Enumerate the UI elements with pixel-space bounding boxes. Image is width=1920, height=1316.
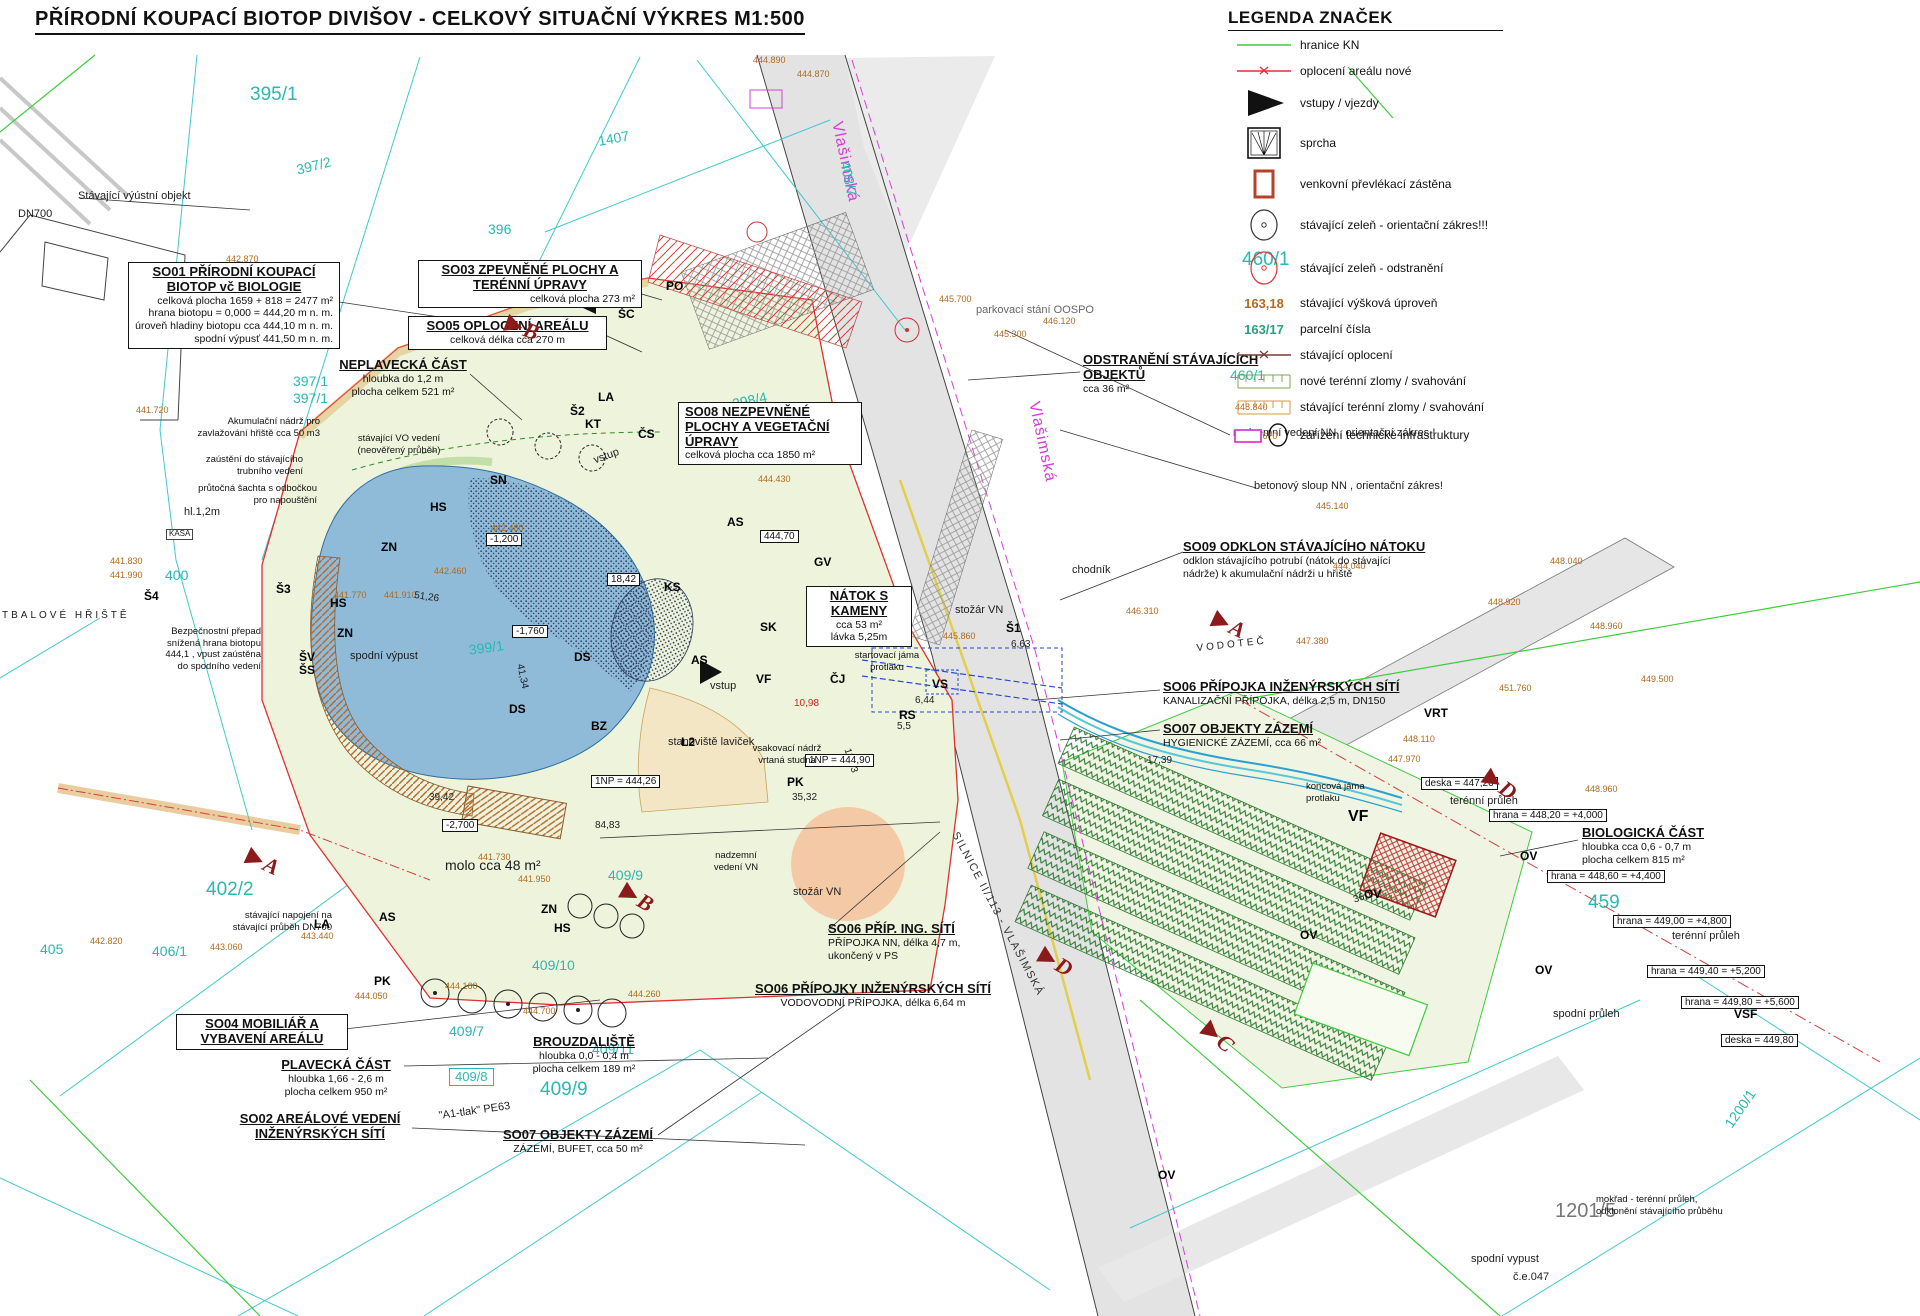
callout: SO09 ODKLON STÁVAJÍCÍHO NÁTOKU odklon st… xyxy=(1183,540,1493,580)
callout-title: SO07 OBJEKTY ZÁZEMÍ xyxy=(1163,722,1373,737)
map-label: 405 xyxy=(40,942,63,957)
callout-title: SO07 OBJEKTY ZÁZEMÍ xyxy=(488,1128,668,1143)
map-label: stožár VN xyxy=(955,604,1003,616)
legend-item: 163,18 stávající výšková úproveň xyxy=(1228,291,1828,315)
legend-title: LEGENDA ZNAČEK xyxy=(1228,8,1503,31)
callout-details: celková délka cca 270 m xyxy=(415,334,600,347)
map-label: parkovací stání OOSPO xyxy=(976,304,1094,316)
callout: zaústění do stávajícíhotrubního vedení xyxy=(165,454,303,477)
map-label: 441.910 xyxy=(384,591,417,601)
map-label: 444,70 xyxy=(760,530,799,543)
map-label: ZN xyxy=(381,541,397,554)
map-label: vstup xyxy=(710,680,736,692)
map-label: 406/1 xyxy=(152,944,187,959)
callout: SO02 AREÁLOVÉ VEDENÍINŽENÝRSKÝCH SÍTÍ xyxy=(220,1112,420,1142)
callout-details: celková plocha cca 1850 m² xyxy=(685,449,855,462)
changing-screen-icon xyxy=(1228,167,1300,201)
legend-item: stávající oplocení xyxy=(1228,343,1828,367)
map-label: OV xyxy=(1535,964,1552,977)
map-label: 445.140 xyxy=(1316,502,1349,512)
callout-details: mokřad - terénní průleh,odklonění stávaj… xyxy=(1596,1194,1776,1217)
callout-title: SO03 ZPEVNĚNÉ PLOCHY ATERÉNNÍ ÚPRAVY xyxy=(425,263,635,293)
callout-title: PLAVECKÁ ČÁST xyxy=(266,1058,406,1073)
map-label: 18,42 xyxy=(607,573,640,586)
map-label: 448.040 xyxy=(1550,557,1583,567)
map-label: VF xyxy=(756,673,771,686)
callout-title: SO04 MOBILIÁŘ AVYBAVENÍ AREÁLU xyxy=(183,1017,341,1047)
map-label: 409/10 xyxy=(532,958,575,973)
callout-title: SO02 AREÁLOVÉ VEDENÍINŽENÝRSKÝCH SÍTÍ xyxy=(220,1112,420,1142)
callout: SO06 PŘÍP. ING. SÍTÍ PŘÍPOJKA NN, délka … xyxy=(828,922,983,962)
map-label: 444.430 xyxy=(758,475,791,485)
map-label: Š3 xyxy=(276,583,291,596)
page-title: PŘÍRODNÍ KOUPACÍ BIOTOP DIVIŠOV - CELKOV… xyxy=(35,8,805,35)
map-label: DN700 xyxy=(18,208,52,220)
callout-details: hloubka cca 0,6 - 0,7 mplocha celkem 815… xyxy=(1582,841,1757,867)
existing-tree-icon xyxy=(1228,207,1300,243)
map-label: 444.700 xyxy=(523,1007,556,1017)
map-label: ZN xyxy=(337,627,353,640)
callout-title: NEPLAVECKÁ ČÁST xyxy=(333,358,473,373)
map-label: ŠC xyxy=(618,308,635,321)
map-label: TBALOVÉ HŘIŠTĚ xyxy=(2,610,130,621)
map-label: PK xyxy=(787,776,804,789)
map-label: 39,42 xyxy=(429,792,454,803)
map-label: 84,83 xyxy=(595,820,620,831)
map-label: KASA xyxy=(166,529,193,540)
map-label: hrana = 449,40 = +5,200 xyxy=(1647,965,1765,978)
existing-fence-icon xyxy=(1228,345,1300,365)
map-label: HS xyxy=(430,501,447,514)
legend-item: stávající zeleň - orientační zákres!!! xyxy=(1228,205,1828,245)
map-label: 35,32 xyxy=(792,792,817,803)
map-label: -2,700 xyxy=(442,819,478,832)
map-label: OV xyxy=(1520,850,1537,863)
callout-details: ZÁZEMÍ, BUFET, cca 50 m² xyxy=(488,1143,668,1156)
callout: nadzemnívedení VN xyxy=(704,850,768,873)
map-label: 449.500 xyxy=(1641,675,1674,685)
map-label: č.e.047 xyxy=(1513,1271,1549,1283)
map-label: 448.960 xyxy=(1585,785,1618,795)
map-label: 446.120 xyxy=(1043,317,1076,327)
callout: BIOLOGICKÁ ČÁST hloubka cca 0,6 - 0,7 mp… xyxy=(1582,826,1757,866)
map-label: 443.060 xyxy=(210,943,243,953)
callout-details: Akumulační nádrž prozavlažování hřiště c… xyxy=(162,416,320,439)
legend-panel: LEGENDA ZNAČEK hranice KN oplocení areál… xyxy=(1228,8,1828,449)
kn-boundary-line-icon xyxy=(1228,35,1300,55)
callout-title: BIOLOGICKÁ ČÁST xyxy=(1582,826,1757,841)
removed-tree-icon xyxy=(1228,249,1300,287)
callout: SO07 OBJEKTY ZÁZEMÍ HYGIENICKÉ ZÁZEMÍ, c… xyxy=(1163,722,1373,750)
callout-title: SO09 ODKLON STÁVAJÍCÍHO NÁTOKU xyxy=(1183,540,1493,555)
callout-details: hloubka 1,66 - 2,6 mplocha celkem 950 m² xyxy=(266,1073,406,1099)
callout: Akumulační nádrž prozavlažování hřiště c… xyxy=(162,416,320,439)
map-label: 445.860 xyxy=(943,632,976,642)
map-label: 441.770 xyxy=(334,591,367,601)
map-label: spodní výpust xyxy=(350,650,418,662)
map-label: 441.720 xyxy=(136,406,169,416)
callout-details: hloubka do 1,2 mplocha celkem 521 m² xyxy=(333,373,473,399)
callout-details: celková plocha 1659 + 818 = 2477 m²hrana… xyxy=(135,295,333,346)
map-label: 17,39 xyxy=(1147,755,1172,766)
map-label: 441.950 xyxy=(518,875,551,885)
callout-details: celková plocha 273 m² xyxy=(425,293,635,306)
map-label: VF xyxy=(1348,808,1368,826)
map-label: 447.380 xyxy=(1296,637,1329,647)
map-label: ČJ xyxy=(830,673,845,686)
map-label: 444.050 xyxy=(355,992,388,1002)
map-label: 447.970 xyxy=(1388,755,1421,765)
map-label: KT xyxy=(585,418,601,431)
map-label: VRT xyxy=(1424,707,1448,720)
map-label: AS xyxy=(379,911,396,924)
callout-details: PŘÍPOJKA NN, délka 4,7 m,ukončený v PS xyxy=(828,937,983,963)
callout-title: SO06 PŘÍP. ING. SÍTÍ xyxy=(828,922,983,937)
legend-item: venkovní převlékací zástěna xyxy=(1228,165,1828,203)
map-label: hl.1,2m xyxy=(184,506,220,518)
map-label: 445.300 xyxy=(994,330,1027,340)
callout: SO04 MOBILIÁŘ AVYBAVENÍ AREÁLU xyxy=(176,1014,348,1050)
legend-item: zařízení technické infrastruktury xyxy=(1228,421,1828,449)
shower-icon xyxy=(1228,125,1300,161)
map-label: PO xyxy=(666,280,683,293)
map-label: Š4 xyxy=(144,590,159,603)
map-label: betonový sloup NN , orientační zákres! xyxy=(1254,480,1443,492)
map-label: 409/9 xyxy=(608,868,643,883)
callout-details: VODOVODNÍ PŘÍPOJKA, délka 6,64 m xyxy=(748,997,998,1010)
map-label: ŠS xyxy=(299,664,315,677)
callout: NEPLAVECKÁ ČÁST hloubka do 1,2 mplocha c… xyxy=(333,358,473,398)
callout-details: nadzemnívedení VN xyxy=(704,850,768,873)
map-label: hrana = 448,60 = +4,400 xyxy=(1547,870,1665,883)
callout-title: SO01 PŘÍRODNÍ KOUPACÍBIOTOP vč BIOLOGIE xyxy=(135,265,333,295)
map-label: 445.700 xyxy=(939,295,972,305)
map-label: 444.260 xyxy=(628,990,661,1000)
map-label: 441.990 xyxy=(110,571,143,581)
map-label: 442.460 xyxy=(434,567,467,577)
map-label: AS xyxy=(691,654,708,667)
map-label: 409/8 xyxy=(449,1068,494,1086)
map-label: Š1 xyxy=(1006,622,1021,635)
callout: Bezpečnostní přepadsnížená hrana biotopu… xyxy=(136,626,261,672)
map-label: -1,200 xyxy=(486,533,522,546)
map-label: 6,63 xyxy=(1011,639,1030,650)
legend-item: sprcha xyxy=(1228,123,1828,163)
map-label: hrana = 448,20 = +4,000 xyxy=(1489,809,1607,822)
callout-details: stávající napojení nastávající průběh DN… xyxy=(180,910,332,933)
map-label: SK xyxy=(760,621,777,634)
map-label: spodní průleh xyxy=(1553,1008,1620,1020)
map-label: GV xyxy=(814,556,831,569)
callout-title: SO06 PŘÍPOJKA INŽENÝRSKÝCH SÍTÍ xyxy=(1163,680,1443,695)
map-label: 448.920 xyxy=(1488,598,1521,608)
callout-details: zaústění do stávajícíhotrubního vedení xyxy=(165,454,303,477)
callout: koncová jámaprotlaku xyxy=(1306,781,1398,804)
callout-details: cca 53 m²lávka 5,25m xyxy=(813,619,905,645)
map-label: 451.760 xyxy=(1499,684,1532,694)
map-label: stožár VN xyxy=(793,886,841,898)
callout-title: BROUZDALIŠTĚ xyxy=(518,1035,650,1050)
map-label: PK xyxy=(374,975,391,988)
callout: SO08 NEZPEVNĚNÉPLOCHY A VEGETAČNÍÚPRAVY … xyxy=(678,402,862,465)
map-label: 396 xyxy=(488,222,511,237)
map-label: 397/1 xyxy=(293,374,328,389)
entry-triangle-icon xyxy=(1228,87,1300,119)
callout-title: SO06 PŘÍPOJKY INŽENÝRSKÝCH SÍTÍ xyxy=(748,982,998,997)
legend-item: stávající zeleň - odstranění xyxy=(1228,247,1828,289)
callout: stávající napojení nastávající průběh DN… xyxy=(180,910,332,933)
map-label: 444.870 xyxy=(797,70,830,80)
map-label: LA xyxy=(598,391,614,404)
map-label: 444.890 xyxy=(753,56,786,66)
map-label: 441.730 xyxy=(478,853,511,863)
map-label: hrana = 449,00 = +4,800 xyxy=(1613,915,1731,928)
callout: mokřad - terénní průleh,odklonění stávaj… xyxy=(1596,1194,1776,1217)
map-label: VS xyxy=(932,678,948,691)
callout-details: průtočná šachta s odbočkoupro napouštění xyxy=(155,483,317,506)
callout-details: koncová jámaprotlaku xyxy=(1306,781,1398,804)
legend-item: oplocení areálu nové xyxy=(1228,59,1828,83)
callout: vsakovací nádržvrtaná studna xyxy=(738,743,836,766)
map-label: -1,760 xyxy=(512,625,548,638)
map-label: VSF xyxy=(1734,1008,1757,1021)
map-label: HS xyxy=(554,922,571,935)
map-label: 441.830 xyxy=(110,557,143,567)
map-label: 443.440 xyxy=(301,932,334,942)
map-label: 448.110 xyxy=(1403,735,1435,745)
map-label: BZ xyxy=(591,720,607,733)
map-label: 448.960 xyxy=(1590,622,1623,632)
callout-title: NÁTOK SKAMENY xyxy=(813,589,905,619)
map-label: 400 xyxy=(165,568,188,583)
infrastructure-icon xyxy=(1228,422,1300,448)
map-label: chodník xyxy=(1072,564,1111,576)
callout-details: stávající VO vedení(neověřený průběh) xyxy=(338,433,460,456)
map-label: 444.160 xyxy=(445,982,478,992)
callout-details: hloubka 0,0 - 0,4 mplocha celkem 189 m² xyxy=(518,1050,650,1076)
map-label: 397/1 xyxy=(293,391,328,406)
parcel-number-sample: 163/17 xyxy=(1228,322,1300,337)
callout-details: KANALIZAČNÍ PŘÍPOJKA, délka 2,5 m, DN150 xyxy=(1163,695,1443,708)
map-label: 10,98 xyxy=(794,698,819,709)
callout: SO01 PŘÍRODNÍ KOUPACÍBIOTOP vč BIOLOGIE … xyxy=(128,262,340,349)
new-slope-icon xyxy=(1228,370,1300,392)
legend-item: hranice KN xyxy=(1228,33,1828,57)
legend-item: stávající terénní zlomy / svahování xyxy=(1228,395,1828,419)
callout-details: odklon stávajícího potrubí (nátok do stá… xyxy=(1183,555,1493,581)
map-label: L2 xyxy=(681,736,695,749)
callout-details: vsakovací nádržvrtaná studna xyxy=(738,743,836,766)
callout: NÁTOK SKAMENY cca 53 m²lávka 5,25m xyxy=(806,586,912,647)
callout: BROUZDALIŠTĚ hloubka 0,0 - 0,4 mplocha c… xyxy=(518,1035,650,1075)
new-fence-icon xyxy=(1228,61,1300,81)
callout: průtočná šachta s odbočkoupro napouštění xyxy=(155,483,317,506)
map-label: AS xyxy=(727,516,744,529)
site-plan-page: PŘÍRODNÍ KOUPACÍ BIOTOP DIVIŠOV - CELKOV… xyxy=(0,0,1920,1316)
callout-details: startovací jámaprotlaku xyxy=(841,650,933,673)
map-label: 1NP = 444,26 xyxy=(591,775,660,788)
map-label: 459 xyxy=(1588,893,1620,914)
map-label: spodní vypust xyxy=(1471,1253,1539,1265)
callout-details: Bezpečnostní přepadsnížená hrana biotopu… xyxy=(136,626,261,672)
map-label: ČS xyxy=(638,428,655,441)
map-label: 446.310 xyxy=(1126,607,1159,617)
map-label: 5,5 xyxy=(897,721,911,732)
callout: SO06 PŘÍPOJKA INŽENÝRSKÝCH SÍTÍ KANALIZA… xyxy=(1163,680,1443,708)
map-label: DS xyxy=(509,703,526,716)
map-label: deska = 449,80 xyxy=(1721,1034,1798,1047)
legend-item: 163/17 parcelní čísla xyxy=(1228,317,1828,341)
map-label: 442.820 xyxy=(90,937,123,947)
map-label: DS xyxy=(574,651,591,664)
map-label: OV xyxy=(1158,1169,1175,1182)
callout: startovací jámaprotlaku xyxy=(841,650,933,673)
legend-item: vstupy / vjezdy xyxy=(1228,85,1828,121)
callout: PLAVECKÁ ČÁST hloubka 1,66 - 2,6 mplocha… xyxy=(266,1058,406,1098)
map-label: Stávající výústní objekt xyxy=(78,190,191,202)
legend-item: nové terénní zlomy / svahování xyxy=(1228,369,1828,393)
map-label: 395/1 xyxy=(250,85,298,106)
callout-title: SO08 NEZPEVNĚNÉPLOCHY A VEGETAČNÍÚPRAVY xyxy=(685,405,855,449)
map-label: OV xyxy=(1300,929,1317,942)
callout: SO07 OBJEKTY ZÁZEMÍ ZÁZEMÍ, BUFET, cca 5… xyxy=(488,1128,668,1156)
map-label: 402/2 xyxy=(206,880,254,901)
map-label: Š2 xyxy=(570,405,585,418)
existing-slope-icon xyxy=(1228,396,1300,418)
map-label: 409/7 xyxy=(449,1024,484,1039)
map-label: ZN xyxy=(541,903,557,916)
map-label: 6,44 xyxy=(915,695,934,706)
callout: stávající VO vedení(neověřený průběh) xyxy=(338,433,460,456)
callout: SO06 PŘÍPOJKY INŽENÝRSKÝCH SÍTÍ VODOVODN… xyxy=(748,982,998,1010)
map-label: terénní průleh xyxy=(1672,930,1740,942)
existing-road-stripes xyxy=(0,78,128,224)
map-label: SN xyxy=(490,474,507,487)
callout-details: HYGIENICKÉ ZÁZEMÍ, cca 66 m² xyxy=(1163,737,1373,750)
map-label: KS xyxy=(664,581,681,594)
elevation-sample: 163,18 xyxy=(1228,296,1300,311)
map-label: 409/9 xyxy=(540,1080,588,1101)
map-label: hrana = 449,80 = +5,600 xyxy=(1681,996,1799,1009)
callout: SO03 ZPEVNĚNÉ PLOCHY ATERÉNNÍ ÚPRAVY cel… xyxy=(418,260,642,308)
